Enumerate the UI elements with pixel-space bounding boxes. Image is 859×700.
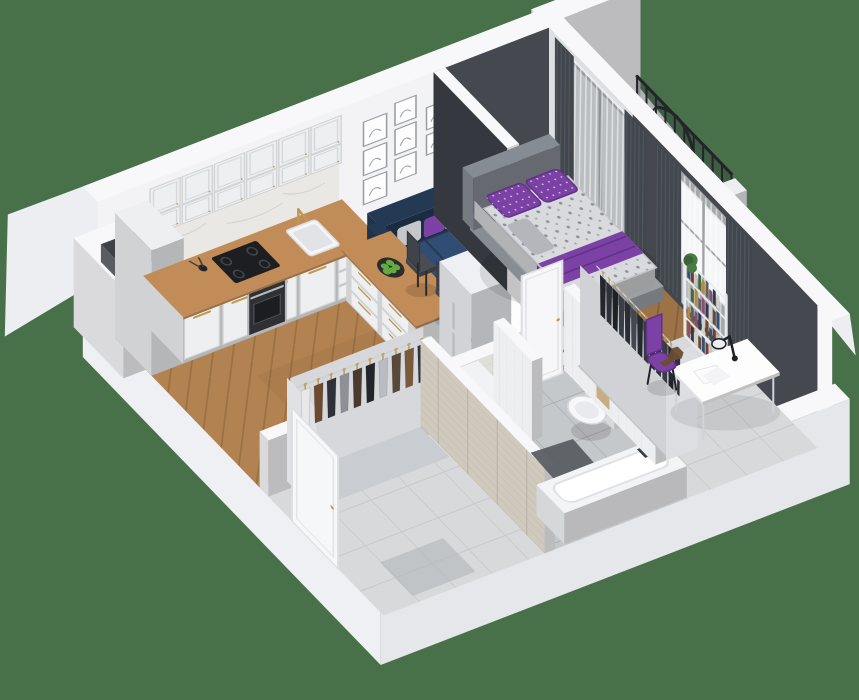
floorplan-3d-scene xyxy=(0,0,859,700)
apartment-render xyxy=(0,0,859,700)
